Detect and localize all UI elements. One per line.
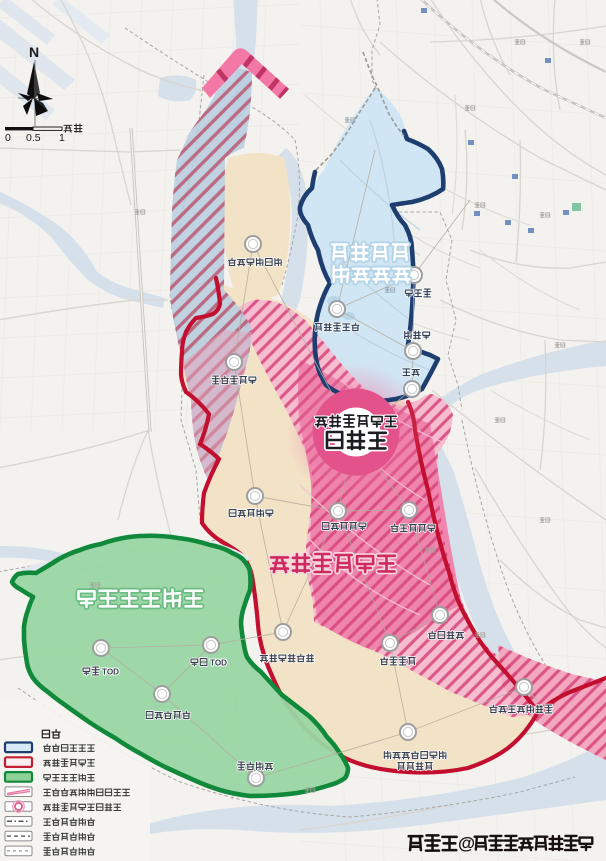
svg-text:TOD: TOD [210,658,227,667]
svg-text:N: N [29,44,39,60]
svg-text:1: 1 [59,132,65,144]
svg-text:@: @ [458,833,475,853]
svg-text:TOD: TOD [102,667,119,676]
svg-text:0.5: 0.5 [26,132,41,144]
svg-text:0: 0 [5,132,11,144]
